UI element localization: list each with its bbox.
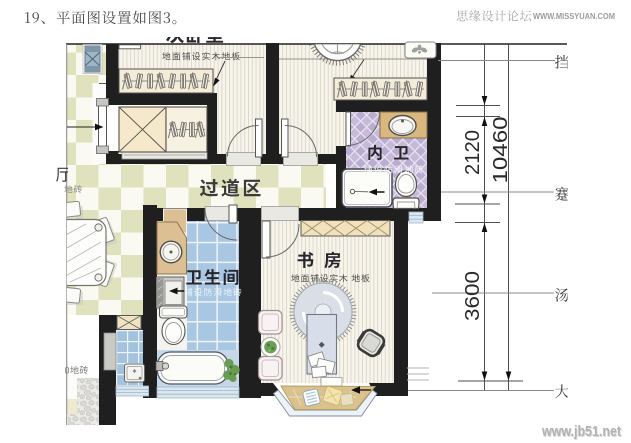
svg-text:10460: 10460: [489, 117, 512, 184]
svg-text:2120: 2120: [462, 130, 484, 175]
svg-text:www.jb51.net: www.jb51.net: [541, 424, 621, 440]
svg-text:WWW.MISSYUAN.COM: WWW.MISSYUAN.COM: [533, 11, 615, 21]
svg-text:3600: 3600: [461, 271, 484, 321]
